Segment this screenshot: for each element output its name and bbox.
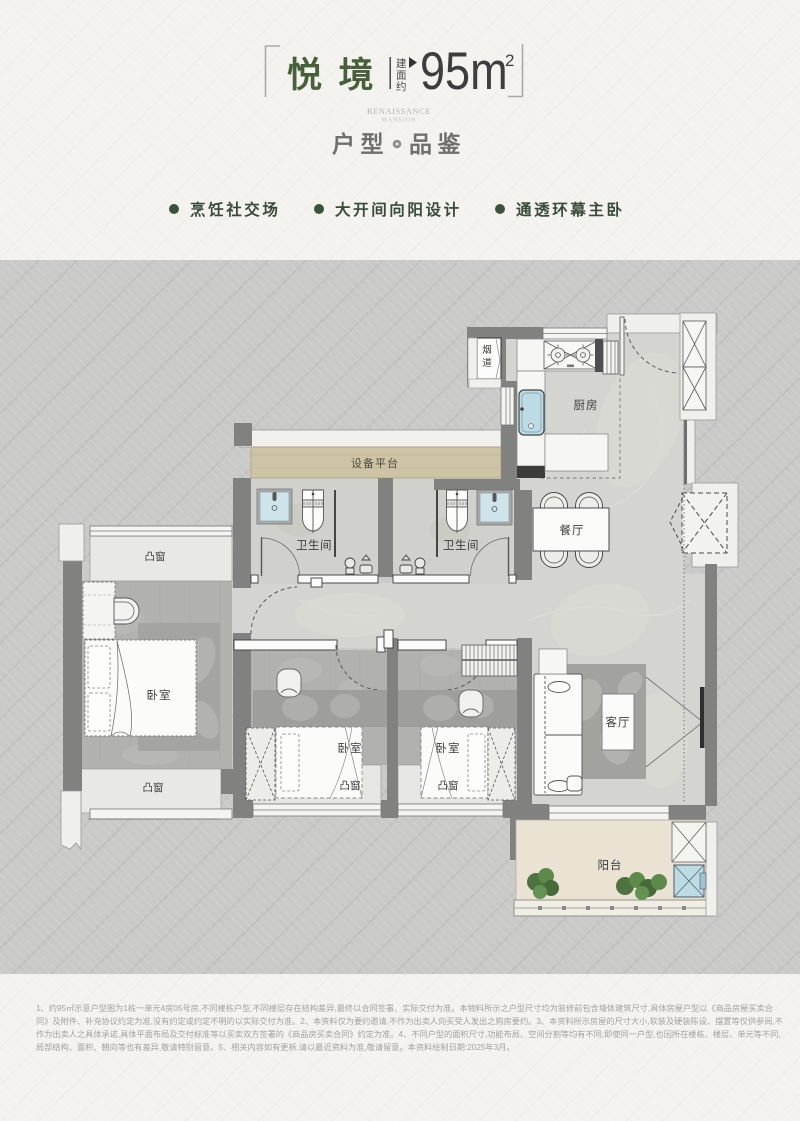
svg-text:餐厅: 餐厅 (560, 523, 585, 537)
svg-text:阳台: 阳台 (598, 858, 623, 872)
svg-text:卫生间: 卫生间 (443, 538, 479, 552)
svg-text:客厅: 客厅 (606, 715, 631, 729)
svg-text:设备平台: 设备平台 (351, 456, 399, 470)
svg-text:卧室: 卧室 (147, 688, 172, 702)
svg-text:卫生间: 卫生间 (296, 538, 332, 552)
svg-text:烟: 烟 (482, 344, 492, 356)
svg-text:凸窗: 凸窗 (145, 550, 166, 563)
svg-text:凸窗: 凸窗 (438, 779, 459, 792)
svg-text:凸窗: 凸窗 (143, 781, 164, 794)
svg-text:卧室: 卧室 (338, 741, 363, 755)
svg-text:厨房: 厨房 (574, 399, 599, 412)
svg-text:凸窗: 凸窗 (340, 779, 361, 792)
svg-text:卧室: 卧室 (436, 741, 461, 755)
svg-text:道: 道 (482, 357, 492, 369)
